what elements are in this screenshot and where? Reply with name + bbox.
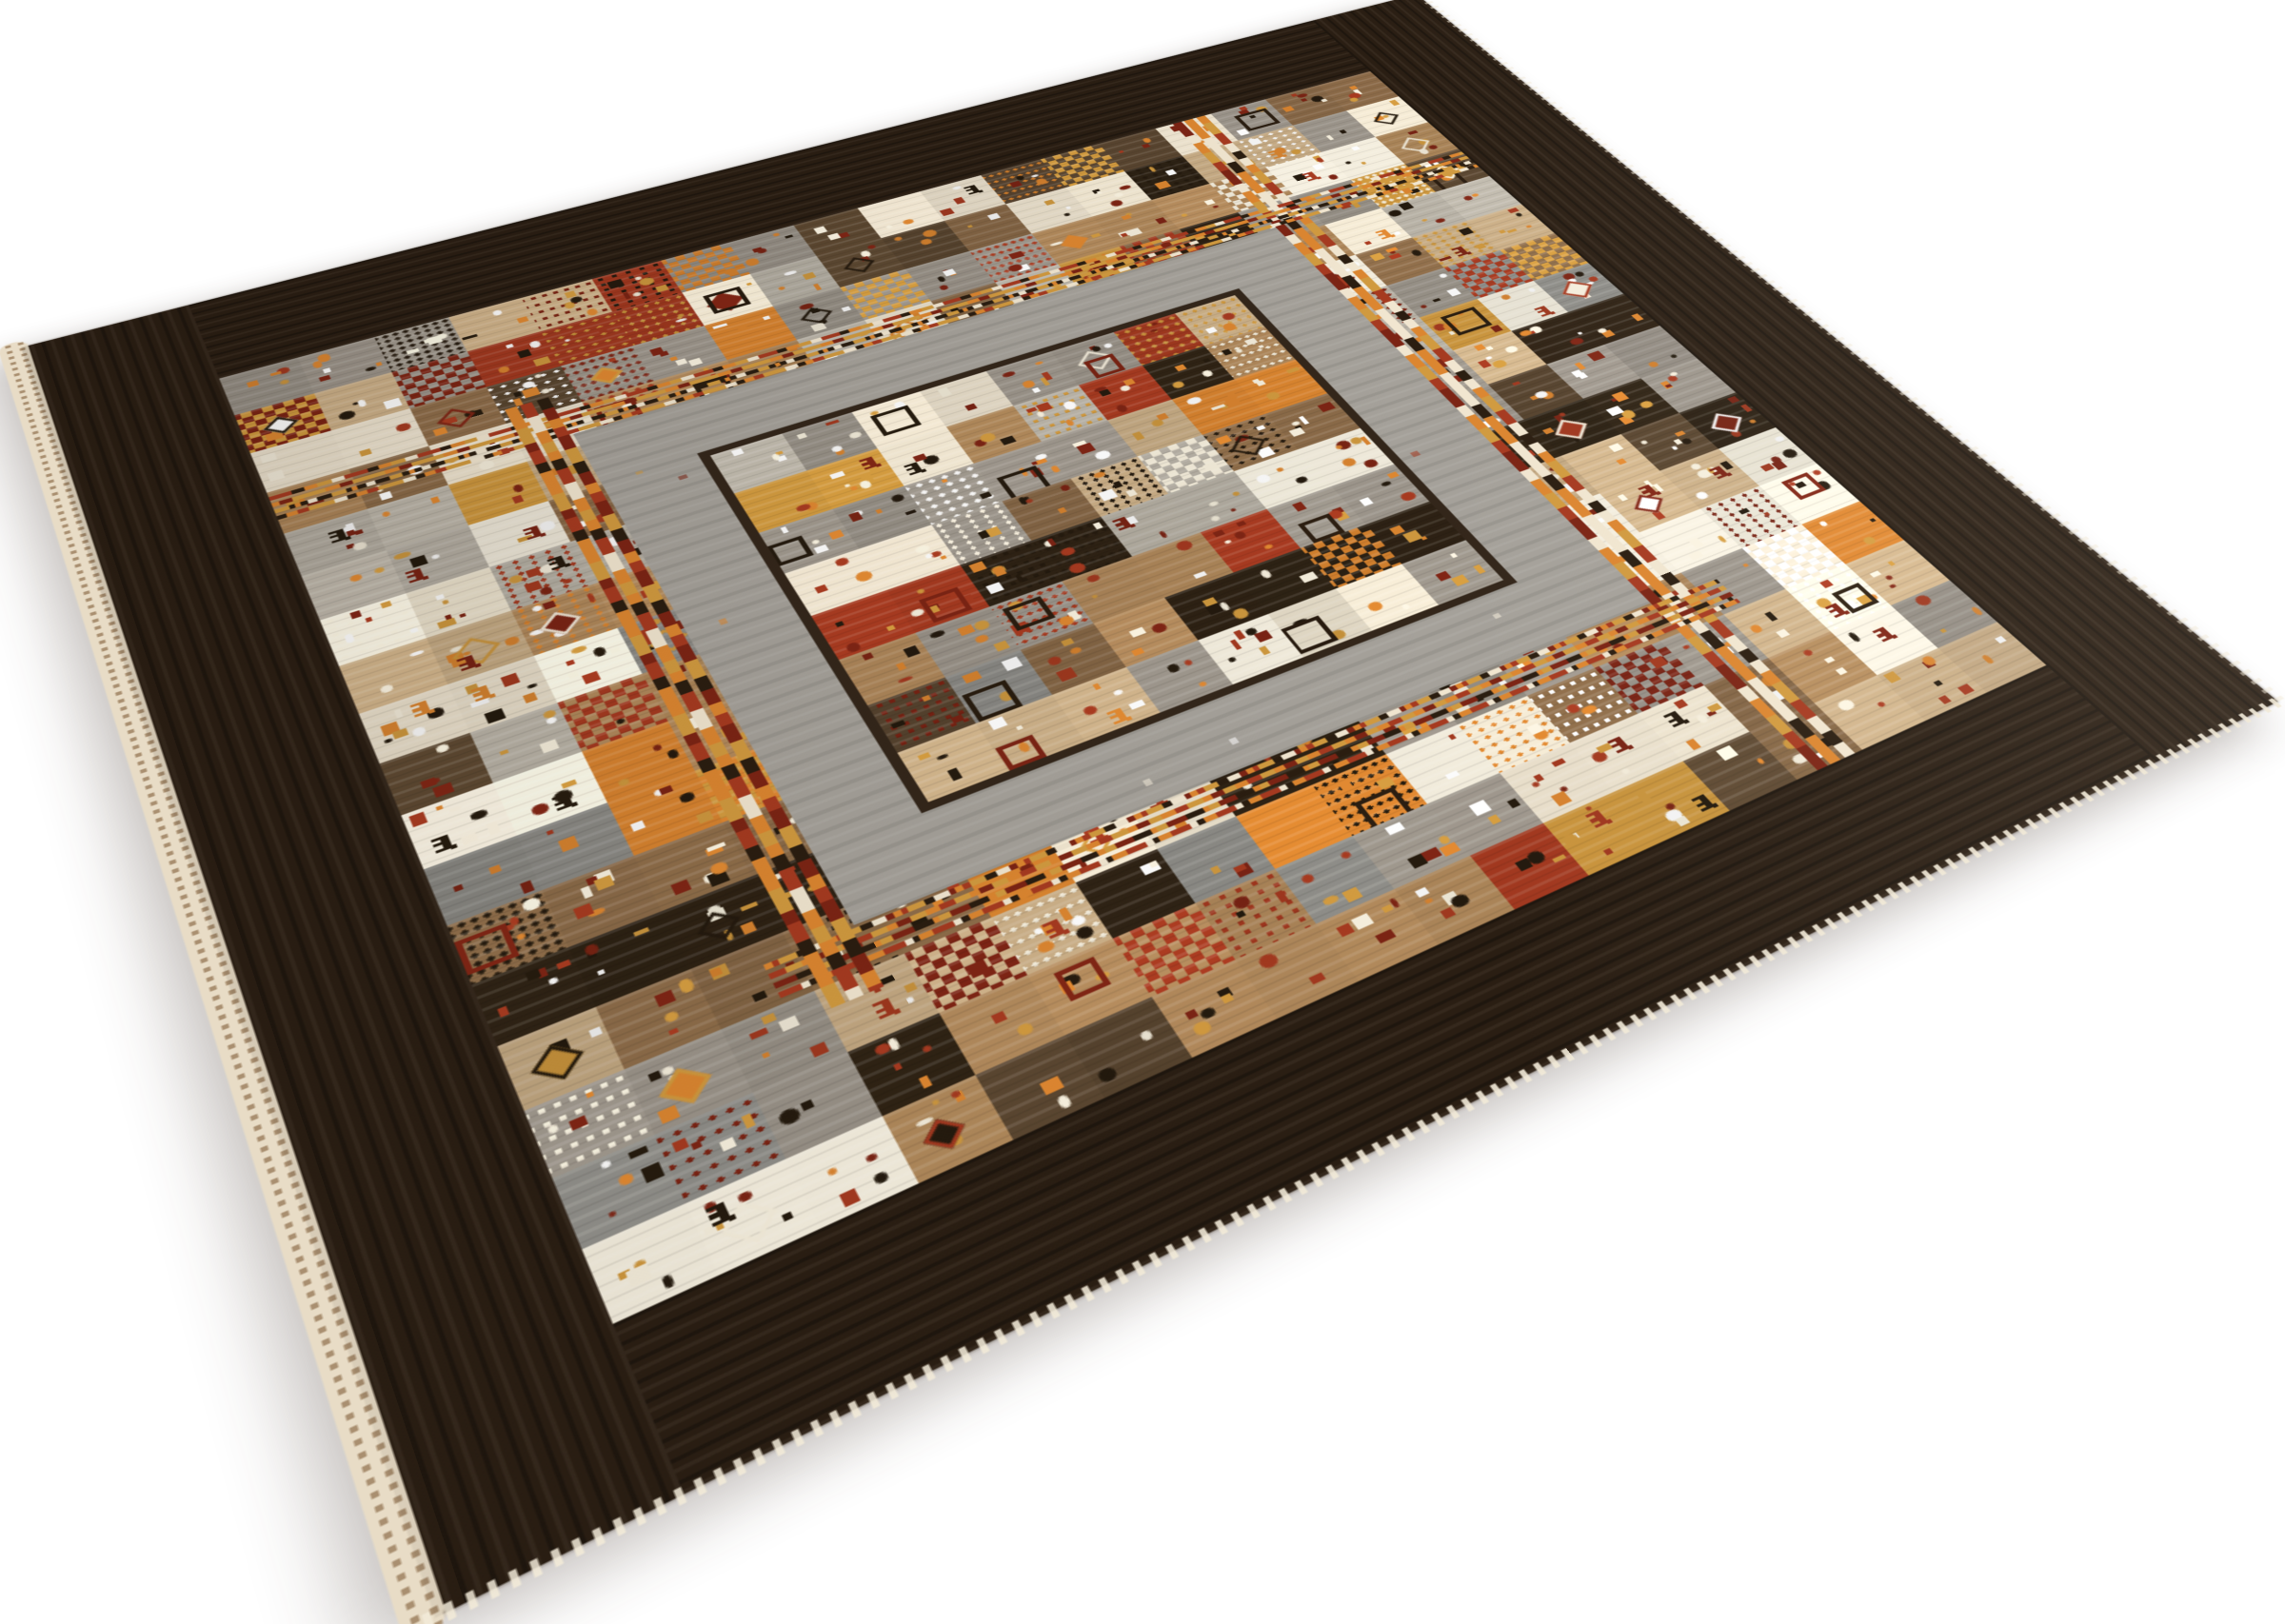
- motif-dot: [1476, 243, 1487, 249]
- motif-dot: [566, 660, 575, 666]
- motif-dot: [1031, 174, 1039, 178]
- motif-dot: [384, 398, 402, 409]
- motif-dot: [600, 1159, 613, 1170]
- motif-dot: [1015, 175, 1025, 181]
- motif-dot: [1574, 271, 1585, 278]
- motif-dot: [731, 448, 745, 457]
- motif-dot: [1739, 507, 1751, 515]
- motif-dot: [1132, 432, 1144, 441]
- motif-dot: [517, 316, 529, 324]
- motif-dot: [1438, 273, 1449, 279]
- motif-dot: [1231, 607, 1251, 621]
- motif-dot: [1473, 564, 1485, 574]
- motif-dot: [322, 368, 330, 374]
- motif-dot: [661, 320, 673, 327]
- motif-dot: [919, 752, 932, 761]
- motif-dot: [905, 996, 916, 1003]
- motif-dot: [838, 1188, 860, 1208]
- motif-dot: [1064, 419, 1075, 426]
- motif-dot: [1093, 449, 1112, 461]
- motif-dot: [586, 592, 597, 603]
- motif-dot: [561, 779, 577, 788]
- motif-animal-pictograph: [1691, 792, 1719, 813]
- motif-dot: [1458, 228, 1473, 236]
- motif-dot: [1423, 897, 1434, 904]
- motif-dot: [566, 671, 579, 680]
- motif-dot: [1009, 251, 1025, 259]
- motif-dot: [1341, 457, 1358, 467]
- motif-dot: [1126, 489, 1138, 497]
- motif-dot: [1837, 699, 1857, 712]
- motif-dot: [691, 1140, 704, 1151]
- motif-dot: [597, 327, 607, 333]
- motif-dot: [688, 358, 703, 366]
- motif-dot: [1276, 467, 1284, 472]
- motif-dot: [736, 324, 748, 330]
- motif-dot: [359, 448, 373, 457]
- motif-dot: [432, 554, 441, 560]
- motif-dot: [1485, 347, 1494, 351]
- motif-diamond: [436, 409, 475, 428]
- motif-dot: [1957, 683, 1976, 695]
- motif-dot: [1385, 822, 1404, 835]
- motif-dot: [348, 610, 363, 620]
- motif-dot: [635, 469, 645, 475]
- motif-dot: [1748, 624, 1763, 634]
- motif-dot: [540, 740, 559, 754]
- motif-dot: [617, 718, 626, 724]
- motif-dot: [850, 485, 859, 491]
- motif-dot: [1617, 458, 1628, 465]
- motif-dot: [437, 618, 456, 629]
- motif-dot: [1321, 98, 1328, 102]
- motif-dot: [1685, 739, 1700, 750]
- motif-dot: [1264, 391, 1281, 401]
- motif-dot: [247, 380, 260, 387]
- motif-diamond: [1374, 112, 1399, 125]
- motif-dot: [462, 333, 478, 340]
- motif-dot: [408, 555, 427, 568]
- motif-dot: [607, 1209, 618, 1218]
- motif-dot: [1074, 924, 1095, 941]
- motif-dot: [1257, 952, 1281, 970]
- motif-dot: [1450, 552, 1459, 558]
- motif-dot: [1632, 313, 1644, 321]
- motif-dot: [1716, 745, 1738, 761]
- motif-dot: [939, 555, 946, 560]
- motif-dot: [625, 752, 642, 762]
- motif-dot: [779, 1015, 799, 1031]
- motif-dot: [631, 291, 641, 297]
- motif-dot: [1647, 362, 1659, 368]
- motif-dot: [1587, 351, 1605, 362]
- motif-dot: [762, 316, 770, 321]
- motif-animal-pictograph: [1606, 734, 1634, 754]
- motif-animal-pictograph: [1533, 304, 1556, 317]
- motif-dot: [527, 567, 543, 578]
- motif-dot: [1388, 253, 1401, 259]
- motif-dot: [500, 672, 521, 686]
- motif-dot: [969, 561, 988, 573]
- motif-dot: [885, 624, 895, 631]
- motif-dot: [1862, 536, 1878, 545]
- motif-dot: [1399, 490, 1418, 502]
- motif-dot: [385, 737, 394, 743]
- motif-dot: [1764, 611, 1778, 622]
- motif-dot: [514, 391, 523, 397]
- motif-dot: [839, 232, 850, 239]
- motif-dot: [892, 1062, 903, 1071]
- motif-dot: [1206, 327, 1218, 334]
- motif-dot: [918, 1075, 933, 1090]
- motif-dot: [814, 284, 823, 290]
- motif-dot: [1050, 465, 1061, 473]
- motif-dot: [1183, 1009, 1199, 1020]
- motif-dot: [904, 982, 917, 993]
- motif-diamond: [589, 367, 622, 384]
- motif-dot: [568, 1114, 588, 1130]
- motif-dot: [1060, 638, 1074, 647]
- motif-dot: [548, 977, 559, 985]
- motif-dot: [1669, 354, 1678, 359]
- motif-dot: [1541, 427, 1555, 435]
- motif-dot: [1326, 135, 1334, 140]
- motif-dot: [796, 433, 806, 440]
- motif-dot: [1150, 419, 1165, 427]
- motif-dot: [1289, 149, 1302, 155]
- motif-dot: [1299, 873, 1315, 885]
- motif-dot: [1435, 218, 1447, 224]
- motif-dot: [1940, 628, 1948, 633]
- motif-dot: [795, 504, 811, 513]
- motif-dot: [409, 628, 419, 635]
- motif-dot: [542, 600, 556, 609]
- motif-dot: [1469, 801, 1491, 817]
- motif-dot: [993, 641, 1009, 652]
- motif-dot: [1035, 939, 1056, 954]
- motif-dot: [525, 968, 543, 982]
- motif-dot: [1528, 287, 1538, 292]
- motif-diamond: [1563, 281, 1592, 297]
- motif-dot: [1155, 181, 1171, 189]
- rug-photo: [21, 0, 2278, 1618]
- motif-dot: [749, 1027, 769, 1040]
- motif-dot: [952, 186, 962, 190]
- motif-dot: [950, 714, 964, 723]
- motif-dot: [1247, 138, 1262, 146]
- motif-dot: [1063, 212, 1071, 217]
- motif-dot: [1981, 654, 1996, 664]
- motif-dot: [861, 652, 874, 662]
- motif-dot: [1764, 512, 1771, 517]
- motif-dot: [1498, 229, 1505, 233]
- motif-dot: [876, 509, 884, 514]
- motif-dot: [1057, 668, 1077, 682]
- motif-dot: [808, 1040, 830, 1058]
- motif-dot: [1847, 632, 1861, 643]
- motif-dot: [1092, 683, 1102, 690]
- motif-dot: [1671, 446, 1679, 450]
- motif-dot: [1818, 521, 1829, 527]
- motif-dot: [1192, 571, 1206, 580]
- motif-dot: [941, 478, 948, 483]
- motif-dot: [1155, 217, 1168, 224]
- motif-dot: [924, 553, 934, 559]
- motif-dot: [1389, 525, 1404, 535]
- motif-dot: [1410, 248, 1423, 256]
- motif-dot: [534, 374, 542, 379]
- motif-window: [869, 405, 921, 436]
- motif-dot: [965, 404, 978, 411]
- motif-dot: [506, 344, 515, 349]
- motif-dot: [569, 644, 587, 655]
- motif-window: [704, 287, 752, 314]
- motif-dot: [1316, 157, 1324, 163]
- motif-dot: [1090, 233, 1101, 238]
- motif-dot: [1210, 515, 1222, 522]
- motif-dot: [1182, 658, 1194, 666]
- motif-dot: [337, 409, 356, 421]
- motif-dot: [1254, 473, 1273, 485]
- motif-dot: [1213, 530, 1224, 537]
- motif-dot: [922, 1045, 933, 1054]
- motif-dot: [511, 484, 524, 493]
- motif-dot: [1119, 385, 1131, 392]
- motif-dot: [920, 238, 932, 245]
- motif-dot: [1069, 645, 1083, 654]
- motif-dot: [1756, 757, 1766, 765]
- motif-dot: [658, 1105, 681, 1124]
- motif-dot: [1380, 481, 1392, 486]
- motif-dot: [443, 600, 449, 604]
- motif-dot: [1403, 530, 1423, 543]
- motif-dot: [1869, 519, 1876, 523]
- motif-dot: [1507, 798, 1520, 808]
- motif-dot: [1381, 904, 1393, 913]
- motif-dot: [663, 1009, 680, 1023]
- motif-dot: [516, 932, 527, 941]
- motif-dot: [630, 820, 646, 831]
- motif-dot: [654, 989, 677, 1007]
- motif-dot: [382, 510, 391, 517]
- motif-dot: [1234, 347, 1243, 353]
- motif-diamond: [698, 913, 740, 940]
- motif-dot: [1262, 544, 1274, 550]
- motif-dot: [1118, 150, 1123, 153]
- motif-dot: [1129, 699, 1147, 710]
- motif-dot: [352, 541, 368, 551]
- motif-dot: [1300, 98, 1307, 102]
- motif-dot: [1439, 256, 1452, 262]
- motif-dot: [523, 387, 541, 398]
- motif-dot: [865, 1152, 878, 1162]
- motif-dot: [1447, 288, 1461, 296]
- motif-animal-pictograph: [1871, 624, 1898, 643]
- motif-dot: [1296, 92, 1308, 98]
- motif-animal-pictograph: [870, 996, 901, 1021]
- motif-dot: [1533, 774, 1544, 782]
- motif-dot: [1365, 600, 1385, 613]
- motif-dot: [974, 633, 990, 644]
- motif-dot: [279, 379, 289, 386]
- motif-dot: [1282, 106, 1295, 112]
- motif-dot: [962, 670, 982, 683]
- motif-animal-pictograph: [1584, 808, 1613, 830]
- motif-dot: [1322, 894, 1341, 906]
- motif-dot: [1185, 396, 1202, 406]
- motif-dot: [1326, 173, 1339, 180]
- motif-dot: [953, 197, 965, 204]
- motif-dot: [628, 1145, 648, 1159]
- motif-dot: [1741, 563, 1749, 567]
- motif-dot: [904, 509, 917, 515]
- motif-dot: [626, 1263, 653, 1287]
- motif-dot: [1109, 199, 1124, 208]
- motif-dot: [811, 539, 820, 545]
- motif-dot: [1512, 381, 1520, 386]
- motif-dot: [1564, 703, 1581, 714]
- motif-dot: [1181, 213, 1188, 217]
- motif-diamond: [531, 1045, 584, 1079]
- motif-dot: [741, 1114, 755, 1130]
- motif-dot: [1091, 594, 1098, 599]
- motif-dot: [1097, 1065, 1119, 1083]
- motif-dot: [1639, 440, 1648, 445]
- motif-dot: [1016, 725, 1023, 731]
- motif-dot: [1695, 491, 1710, 501]
- motif-dot: [1531, 781, 1541, 788]
- motif-dot: [1812, 469, 1823, 476]
- motif-dot: [1000, 435, 1017, 445]
- motif-dot: [1103, 343, 1113, 348]
- motif-dot: [1065, 206, 1072, 209]
- motif-diamond: [1556, 420, 1587, 439]
- motif-dot: [761, 1052, 770, 1060]
- motif-dot: [1099, 388, 1112, 396]
- motif-dot: [1289, 427, 1305, 437]
- motif-dot: [1351, 913, 1374, 930]
- motif-dot: [1044, 199, 1056, 205]
- motif-dot: [1255, 380, 1266, 386]
- motif-dot: [1361, 458, 1380, 468]
- motif-dot: [980, 491, 992, 499]
- motif-dot: [801, 1099, 815, 1112]
- motif-dot: [1801, 648, 1816, 658]
- motif-dot: [1577, 331, 1583, 335]
- motif-dot: [1920, 655, 1938, 667]
- motif-dot: [1409, 450, 1421, 458]
- motif-dot: [1299, 571, 1318, 583]
- motif-dot: [1553, 854, 1566, 862]
- motif-dot: [1351, 146, 1361, 150]
- motif-dot: [546, 829, 554, 835]
- motif-dot: [607, 279, 626, 289]
- motif-dot: [1122, 214, 1132, 220]
- motif-dot: [1209, 865, 1222, 875]
- motif-dot: [1401, 604, 1412, 611]
- motif-dot: [1308, 973, 1326, 985]
- motif-dot: [343, 633, 354, 644]
- motif-dot: [922, 695, 932, 702]
- motif-dot: [1232, 530, 1246, 540]
- motif-dot: [654, 285, 668, 293]
- motif-dot: [815, 584, 828, 594]
- motif-dot: [1009, 181, 1023, 188]
- motif-dot: [1639, 400, 1655, 409]
- motif-dot: [1223, 540, 1232, 545]
- motif-animal-pictograph: [1106, 704, 1133, 724]
- motif-dot: [557, 959, 571, 969]
- motif-dot: [965, 960, 990, 979]
- motif-dot: [1421, 219, 1427, 223]
- motif-dot: [488, 865, 502, 875]
- motif-dot: [1016, 1021, 1035, 1037]
- motif-animal-pictograph: [431, 832, 459, 855]
- motif-dot: [1063, 400, 1078, 410]
- motif-dot: [1602, 848, 1613, 856]
- motif-dot: [1085, 574, 1100, 584]
- motif-dot: [435, 595, 444, 601]
- motif-dot: [448, 804, 464, 814]
- motif-dot: [1608, 444, 1623, 453]
- motif-dot: [380, 491, 393, 500]
- motif-dot: [1551, 791, 1572, 806]
- motif-dot: [1445, 771, 1460, 780]
- motif-dot: [355, 529, 364, 534]
- motif-dot: [1222, 322, 1239, 331]
- motif-dot: [500, 749, 508, 756]
- motif-dot: [1148, 166, 1157, 172]
- motif-dot: [1198, 681, 1208, 687]
- motif-dot: [1041, 1077, 1064, 1096]
- motif-dot: [585, 1091, 593, 1099]
- motif-dot: [1312, 164, 1325, 170]
- motif-dot: [669, 1027, 680, 1036]
- motif-dot: [1002, 370, 1017, 378]
- motif-dot: [909, 607, 925, 618]
- motif-dot: [1232, 895, 1252, 909]
- motif-dot: [938, 285, 948, 290]
- motif-dot: [1575, 363, 1586, 370]
- motif-dot: [947, 768, 962, 782]
- motif-dot: [1210, 404, 1225, 410]
- motif-dot: [1370, 252, 1385, 261]
- motif-dot: [1237, 521, 1246, 526]
- motif-dot: [618, 779, 629, 786]
- motif-window: [1440, 307, 1492, 336]
- motif-dot: [1525, 225, 1532, 228]
- motif-dot: [1319, 403, 1336, 413]
- motif-dot: [436, 332, 449, 340]
- motif-dot: [581, 670, 601, 683]
- motif-dot: [436, 804, 445, 810]
- motif-dot: [1120, 233, 1127, 237]
- motif-dot: [914, 1116, 934, 1128]
- motif-dot: [1258, 345, 1264, 348]
- motif-dot: [432, 426, 447, 436]
- motif-dot: [1082, 704, 1100, 717]
- motif-dot: [1256, 426, 1266, 431]
- motif-dot: [523, 692, 538, 703]
- motif-dot: [1440, 907, 1457, 921]
- motif-dot: [1389, 99, 1401, 106]
- motif-dot: [678, 474, 688, 480]
- motif-dot: [1388, 194, 1399, 200]
- motif-dot: [778, 287, 785, 290]
- motif-dot: [532, 604, 543, 612]
- patchwork-rug: [21, 0, 2278, 1618]
- motif-dot: [903, 645, 920, 657]
